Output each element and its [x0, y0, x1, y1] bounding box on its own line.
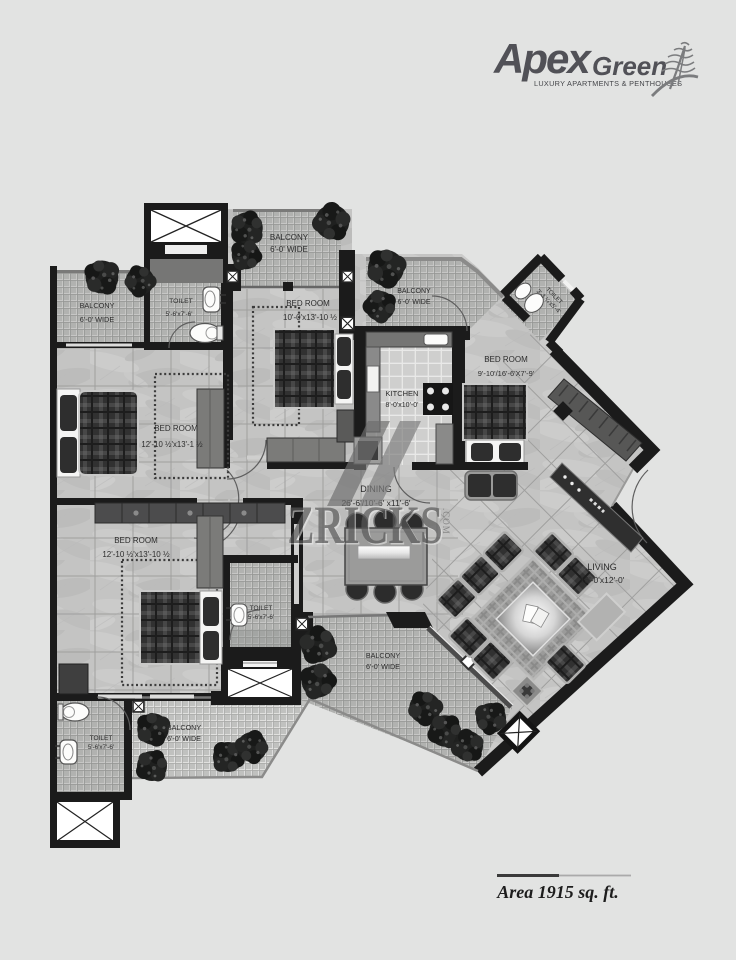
svg-text:6'-0' WIDE: 6'-0' WIDE [366, 662, 400, 671]
svg-text:ZRICKS: ZRICKS [287, 495, 442, 555]
svg-text:6'-0' WIDE: 6'-0' WIDE [167, 734, 201, 743]
svg-text:BALCONY: BALCONY [80, 301, 115, 310]
svg-text:10'-0'x13'-10 ½: 10'-0'x13'-10 ½ [283, 313, 337, 322]
svg-text:BED ROOM: BED ROOM [154, 424, 198, 433]
svg-text:BED ROOM: BED ROOM [484, 355, 528, 364]
svg-text:5'-6'x7'-6': 5'-6'x7'-6' [248, 614, 274, 621]
svg-text:BALCONY: BALCONY [167, 723, 202, 732]
svg-text:BALCONY: BALCONY [397, 288, 431, 295]
svg-text:BALCONY: BALCONY [270, 233, 309, 242]
svg-text:12'-10 ½'x13'-1 ½: 12'-10 ½'x13'-1 ½ [141, 440, 203, 449]
svg-text:.COM: .COM [441, 508, 451, 535]
svg-text:Green: Green [592, 51, 667, 81]
svg-text:Apex: Apex [493, 35, 592, 82]
svg-text:8'-0'x10'-0': 8'-0'x10'-0' [386, 402, 419, 409]
svg-text:BALCONY: BALCONY [366, 651, 401, 660]
svg-text:Area 1915 sq. ft.: Area 1915 sq. ft. [496, 882, 619, 902]
svg-text:5'-6'x7'-6': 5'-6'x7'-6' [88, 744, 114, 751]
svg-text:12'-10 ½'x13'-10 ½: 12'-10 ½'x13'-10 ½ [102, 550, 170, 559]
svg-text:6'-0' WIDE: 6'-0' WIDE [80, 315, 115, 324]
svg-text:6'-0' WIDE: 6'-0' WIDE [270, 245, 308, 254]
svg-text:5'-6'x7'-6': 5'-6'x7'-6' [165, 311, 192, 318]
svg-text:9'-10'/16'-6'X7'-9': 9'-10'/16'-6'X7'-9' [478, 369, 535, 378]
svg-text:BED ROOM: BED ROOM [286, 299, 330, 308]
svg-text:KITCHEN: KITCHEN [386, 389, 419, 398]
svg-text:BED ROOM: BED ROOM [114, 536, 158, 545]
svg-text:TOILET: TOILET [90, 735, 113, 742]
svg-text:TOILET: TOILET [250, 605, 273, 612]
svg-text:6'-0' WIDE: 6'-0' WIDE [397, 299, 430, 306]
svg-text:TOILET: TOILET [169, 298, 193, 305]
svg-text:16'-0'x12'-0': 16'-0'x12'-0' [580, 575, 625, 585]
svg-text:LIVING: LIVING [587, 562, 617, 572]
